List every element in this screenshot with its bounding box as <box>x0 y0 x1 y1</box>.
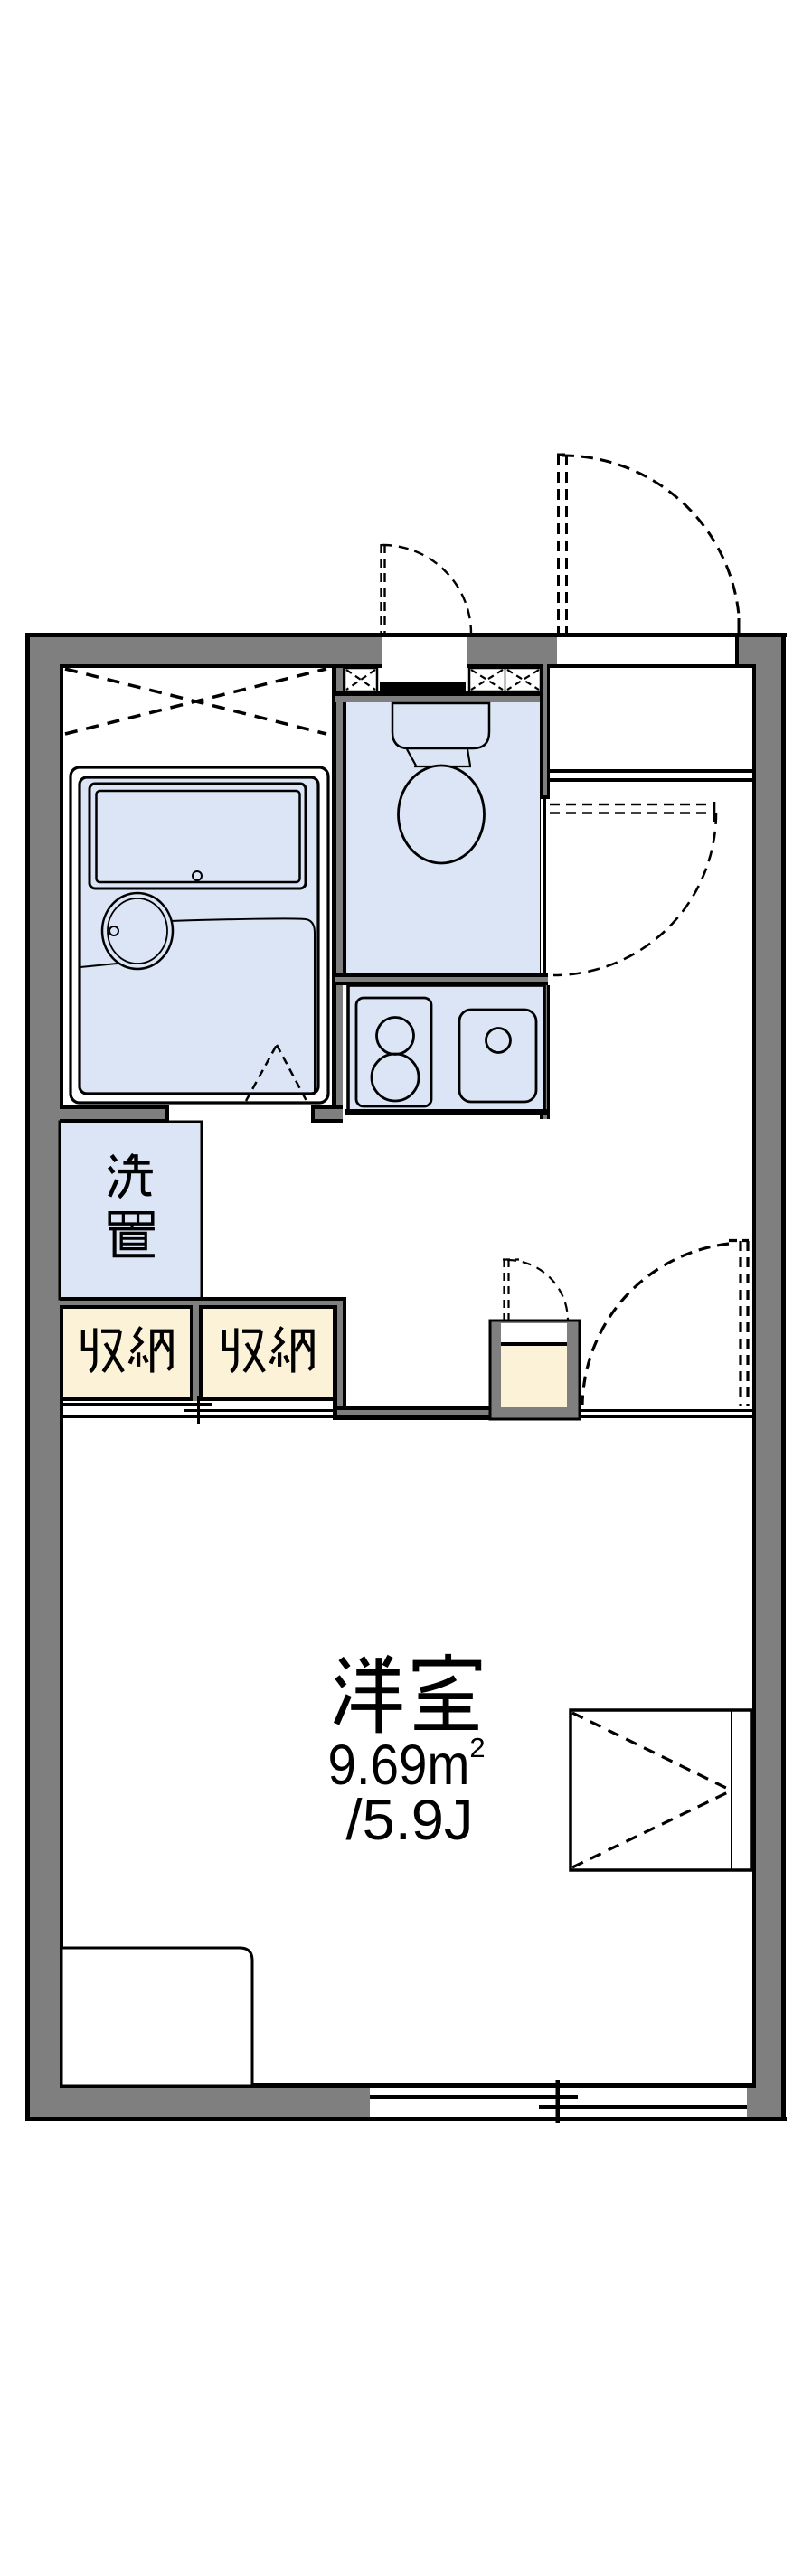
svg-text:/5.9J: /5.9J <box>346 1789 474 1852</box>
svg-text:9.69m: 9.69m <box>328 1734 470 1797</box>
svg-text:2: 2 <box>469 1732 485 1763</box>
